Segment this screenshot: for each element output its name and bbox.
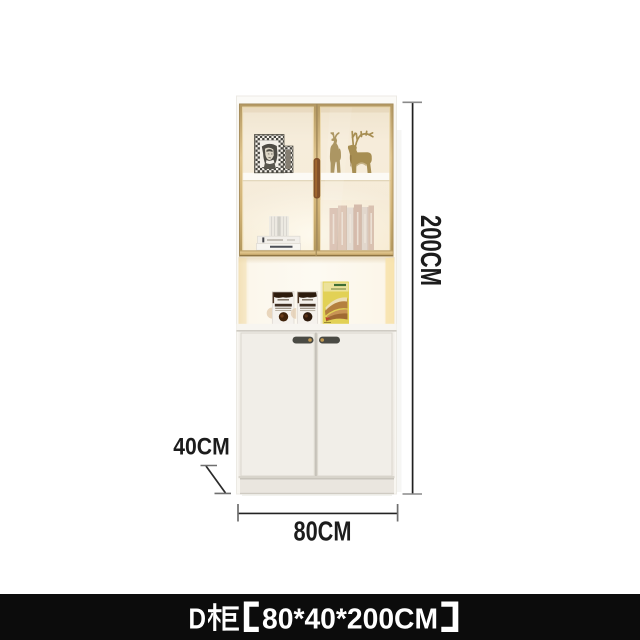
svg-text:200CM: 200CM <box>414 215 446 286</box>
svg-text:D: D <box>189 603 207 635</box>
svg-text:80*40*200CM: 80*40*200CM <box>262 603 438 635</box>
svg-text:40CM: 40CM <box>173 433 230 460</box>
svg-text:80CM: 80CM <box>294 516 352 547</box>
